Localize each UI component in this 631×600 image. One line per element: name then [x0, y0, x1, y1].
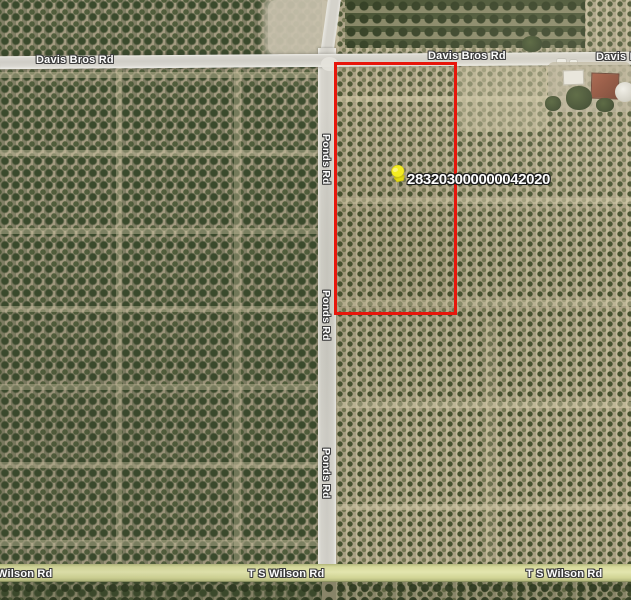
road-label-davis-bros-east-clipped: Davis B [596, 51, 631, 64]
road-label-ts-wilson-center: T S Wilson Rd [248, 568, 324, 581]
road-label-wilson-west-clipped: Wilson Rd [0, 568, 52, 581]
tree-blob [545, 96, 561, 111]
pushpin-icon [389, 164, 409, 191]
farm-lane [486, 320, 492, 562]
tree-blob [566, 86, 592, 110]
parcel-id-label: 283203000000042020 [407, 171, 550, 188]
map-canvas[interactable]: 283203000000042020 Davis Bros Rd Davis B… [0, 0, 631, 600]
tree-blob [522, 36, 542, 52]
grove-imagery-west [0, 0, 322, 600]
parcel-pin-icon[interactable] [389, 164, 409, 191]
road-label-davis-bros-center: Davis Bros Rd [428, 50, 506, 63]
clearing-east-of-parcel [458, 64, 546, 132]
road-label-ponds-rd-2: Ponds Rd [319, 290, 332, 341]
road-label-ponds-rd-3: Ponds Rd [319, 448, 332, 499]
road-label-davis-bros-west: Davis Bros Rd [36, 54, 114, 67]
round-tank [615, 82, 631, 102]
tree-blob [596, 98, 614, 112]
road-label-ts-wilson-east: T S Wilson Rd [526, 568, 602, 581]
dense-trees-northeast [345, 0, 585, 48]
tree-row-south [0, 581, 631, 600]
farm-lane [234, 68, 241, 562]
road-label-ponds-rd-1: Ponds Rd [319, 134, 332, 185]
building-white-roof [563, 70, 585, 86]
farm-lane [116, 68, 122, 562]
